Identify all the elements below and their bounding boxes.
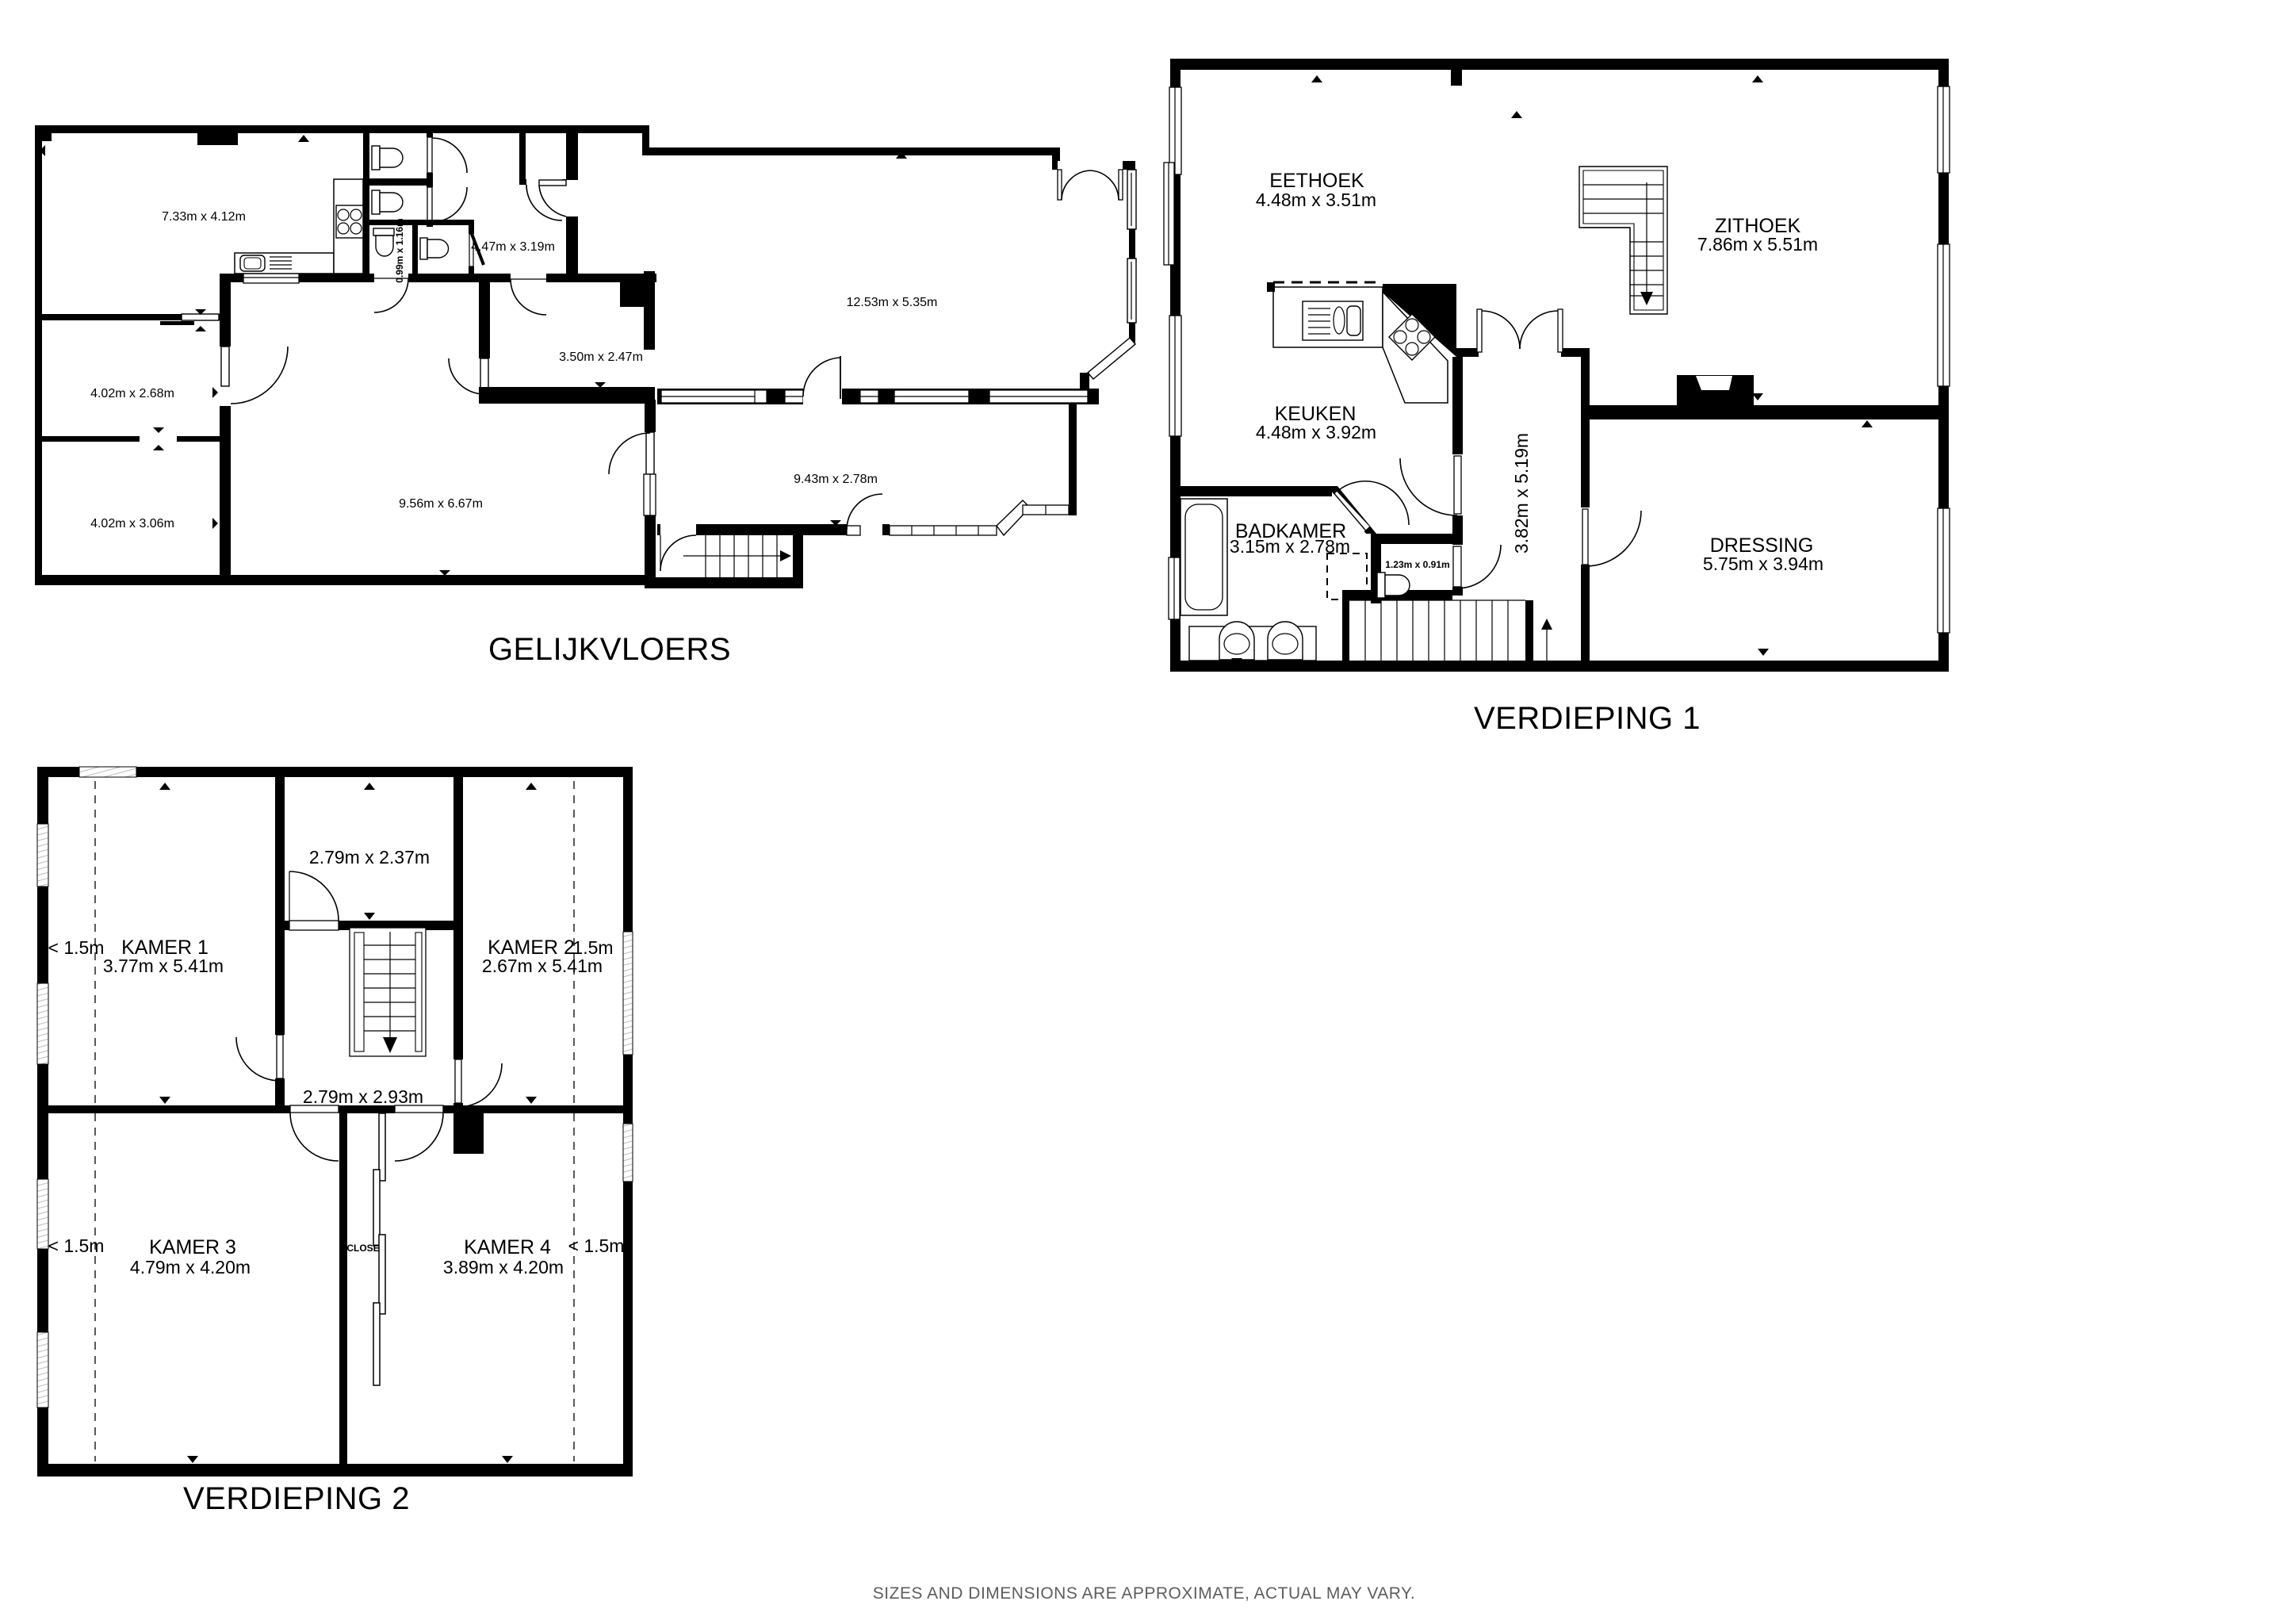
svg-text:GELIJKVLOERS: GELIJKVLOERS xyxy=(488,632,731,667)
svg-text:9.56m x 6.67m: 9.56m x 6.67m xyxy=(399,497,483,511)
svg-text:1.5m: 1.5m xyxy=(572,937,613,958)
svg-text:3.82m x 5.19m: 3.82m x 5.19m xyxy=(1511,433,1532,553)
svg-text:12.53m x 5.35m: 12.53m x 5.35m xyxy=(847,296,938,309)
svg-text:1.23m x 0.91m: 1.23m x 0.91m xyxy=(1385,559,1449,570)
svg-text:2.79m x 2.37m: 2.79m x 2.37m xyxy=(309,847,430,868)
svg-text:< 1.5m: < 1.5m xyxy=(48,937,105,958)
svg-text:VERDIEPING 1: VERDIEPING 1 xyxy=(1474,701,1701,736)
svg-text:4.02m x 3.06m: 4.02m x 3.06m xyxy=(90,517,174,530)
svg-text:0.99m x 1.16m: 0.99m x 1.16m xyxy=(394,218,405,282)
svg-text:7.33m x 4.12m: 7.33m x 4.12m xyxy=(162,210,246,224)
svg-text:3.89m x 4.20m: 3.89m x 4.20m xyxy=(443,1257,564,1277)
svg-text:< 1.5m: < 1.5m xyxy=(568,1235,625,1256)
svg-text:2.79m x 2.93m: 2.79m x 2.93m xyxy=(303,1086,423,1107)
svg-text:2.67m x 5.41m: 2.67m x 5.41m xyxy=(482,956,603,976)
svg-text:4.48m x 3.92m: 4.48m x 3.92m xyxy=(1256,422,1376,442)
svg-text:4.47m x 3.19m: 4.47m x 3.19m xyxy=(471,240,555,254)
svg-text:KAMER 4: KAMER 4 xyxy=(464,1236,551,1258)
svg-text:3.50m x 2.47m: 3.50m x 2.47m xyxy=(559,350,643,364)
svg-text:EETHOEK: EETHOEK xyxy=(1269,170,1364,192)
svg-text:4.02m x 2.68m: 4.02m x 2.68m xyxy=(90,387,174,400)
svg-text:5.75m x 3.94m: 5.75m x 3.94m xyxy=(1703,553,1823,574)
svg-text:< 1.5m: < 1.5m xyxy=(48,1235,105,1256)
svg-text:KAMER 3: KAMER 3 xyxy=(149,1236,236,1258)
svg-text:9.43m x 2.78m: 9.43m x 2.78m xyxy=(794,473,878,486)
svg-text:4.79m x 4.20m: 4.79m x 4.20m xyxy=(130,1257,251,1277)
svg-text:4.48m x 3.51m: 4.48m x 3.51m xyxy=(1256,190,1376,210)
svg-text:VERDIEPING 2: VERDIEPING 2 xyxy=(183,1481,410,1516)
svg-text:7.86m x 5.51m: 7.86m x 5.51m xyxy=(1697,234,1818,255)
svg-text:3.77m x 5.41m: 3.77m x 5.41m xyxy=(103,956,224,976)
svg-text:CLOSE: CLOSE xyxy=(346,1243,379,1254)
svg-text:SIZES AND DIMENSIONS ARE APPRO: SIZES AND DIMENSIONS ARE APPROXIMATE, AC… xyxy=(873,1584,1415,1603)
svg-text:3.15m x 2.78m: 3.15m x 2.78m xyxy=(1230,536,1350,557)
